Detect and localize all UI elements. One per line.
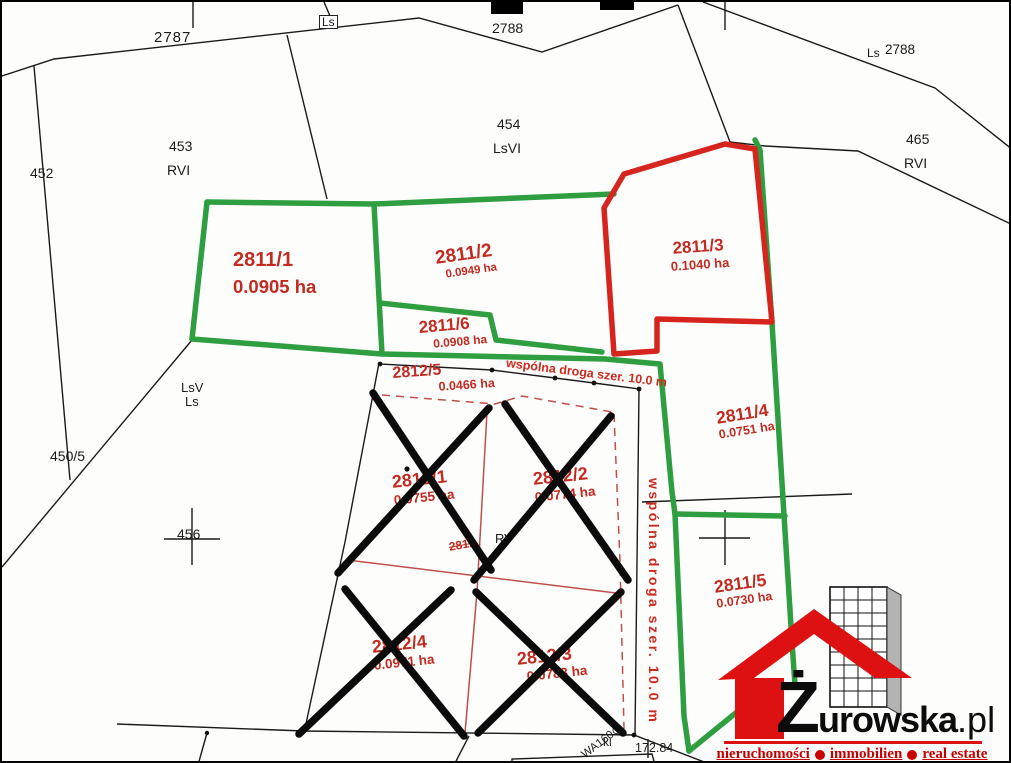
parcel-2811-4-label: 2811/4 0.0751 ha — [715, 401, 775, 440]
parcel-2811-3-area: 0.1040 ha — [670, 256, 729, 273]
logo-initial: Ż — [776, 676, 818, 741]
soil-class-label-rvi-465: RVI — [904, 156, 927, 170]
forest-label-ls-top: Ls — [319, 15, 338, 29]
parcel-2812-2-label: 2812/2 0.0774 ha — [532, 464, 596, 505]
parcel-2811-1-number: 2811/1 — [233, 250, 316, 270]
parcel-2811-1-area: 0.0905 ha — [233, 278, 316, 297]
forest-label-lsv: LsV — [181, 381, 203, 394]
forest-label-ls-lower: Ls — [185, 395, 199, 408]
parcel-2811-6-label: 2811/6 0.0908 ha — [418, 313, 488, 351]
parcel-2812-5-area: 0.0466 ha — [438, 377, 495, 393]
soil-class-label-rvi-453: RVI — [167, 163, 190, 177]
parcel-label-2788-top: 2788 — [492, 21, 523, 35]
survey-point-dots — [205, 362, 642, 738]
point-id-label: WA160⊙ — [580, 724, 624, 761]
parcel-2811-3-label: 2811/3 0.1040 ha — [669, 236, 730, 273]
forest-label-ls-right: Ls — [867, 47, 880, 59]
parcel-2811-6-area: 0.0908 ha — [433, 333, 488, 350]
parcel-label-2788-right: 2788 — [885, 43, 915, 57]
parcel-label-452: 452 — [30, 166, 53, 180]
bullet-icon — [907, 750, 917, 760]
parcel-2811-1-label: 2811/1 0.0905 ha — [233, 250, 316, 297]
parcel-2811-5-label: 2811/5 0.0730 ha — [713, 571, 773, 610]
parcel-label-450-5: 450/5 — [50, 449, 85, 463]
logo-tld: .pl — [957, 699, 995, 741]
old-parcel-label-2812-struck: 2812 — [448, 536, 476, 552]
cadastral-map: 2787 Ls 2788 Ls 2788 452 453 RVI 454 LsV… — [0, 0, 1011, 763]
parcel-label-454: 454 — [497, 117, 520, 131]
tagline-nieruchomosci: nieruchomości — [717, 746, 810, 762]
top-edge-marks — [491, 2, 634, 14]
subdivision-red-dashed-lines — [382, 395, 624, 729]
parcel-2812-1-label: 2812/1 0.0755 ha — [391, 467, 455, 508]
logo-tagline: nieruchomościimmobilienreal estate — [716, 746, 988, 763]
parcel-2811-3-number: 2811/3 — [672, 236, 729, 257]
logo-name: urowska — [818, 699, 957, 741]
parcel-label-453: 453 — [169, 139, 192, 153]
soil-class-label-rv: RV — [495, 532, 513, 545]
logo-divider — [724, 741, 982, 744]
bullet-icon — [815, 750, 825, 760]
parcel-2812-5-label: 2812/5 0.0466 ha — [392, 359, 495, 396]
measurement-label: 172.84 — [635, 742, 673, 755]
logo-zurowska: Żurowska.pl — [776, 676, 995, 741]
parcel-label-465: 465 — [906, 132, 929, 146]
parcel-label-2787: 2787 — [154, 30, 191, 45]
subdivision-red-lines — [347, 412, 624, 733]
road-label-horizontal: wspólna droga szer. 10.0 m — [505, 357, 667, 389]
parcel-2812-3-label: 2812/3 0.0783 ha — [516, 643, 588, 685]
parcel-2811-2-label: 2811/2 0.0949 ha — [434, 241, 498, 282]
green-parcel-boundaries — [192, 140, 795, 751]
tagline-immobilien: immobilien — [830, 746, 903, 762]
soil-class-label-lsvi-454: LsVI — [493, 141, 521, 155]
road-label-vertical: wspólna droga szer. 10.0 m — [647, 478, 661, 724]
tagline-real-estate: real estate — [922, 746, 987, 762]
parcel-2812-4-label: 2812/4 0.0971 ha — [371, 632, 435, 673]
parcel-label-456: 456 — [177, 527, 200, 541]
